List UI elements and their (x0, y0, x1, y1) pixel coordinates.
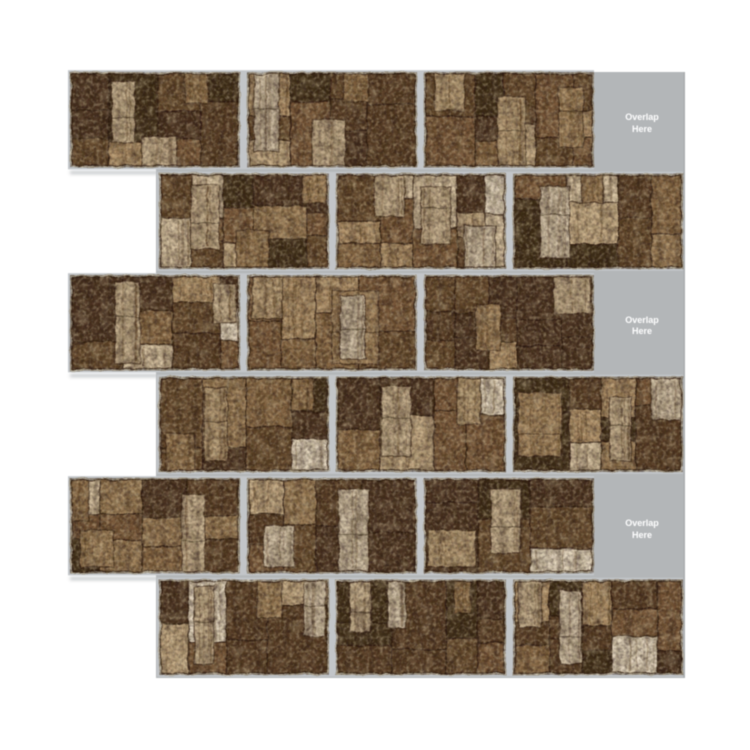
svg-text:Here: Here (632, 326, 652, 336)
svg-text:Overlap: Overlap (625, 315, 659, 325)
svg-text:Here: Here (632, 124, 652, 134)
svg-text:Here: Here (632, 530, 652, 540)
svg-text:Overlap: Overlap (625, 518, 659, 528)
svg-text:Overlap: Overlap (625, 112, 659, 122)
